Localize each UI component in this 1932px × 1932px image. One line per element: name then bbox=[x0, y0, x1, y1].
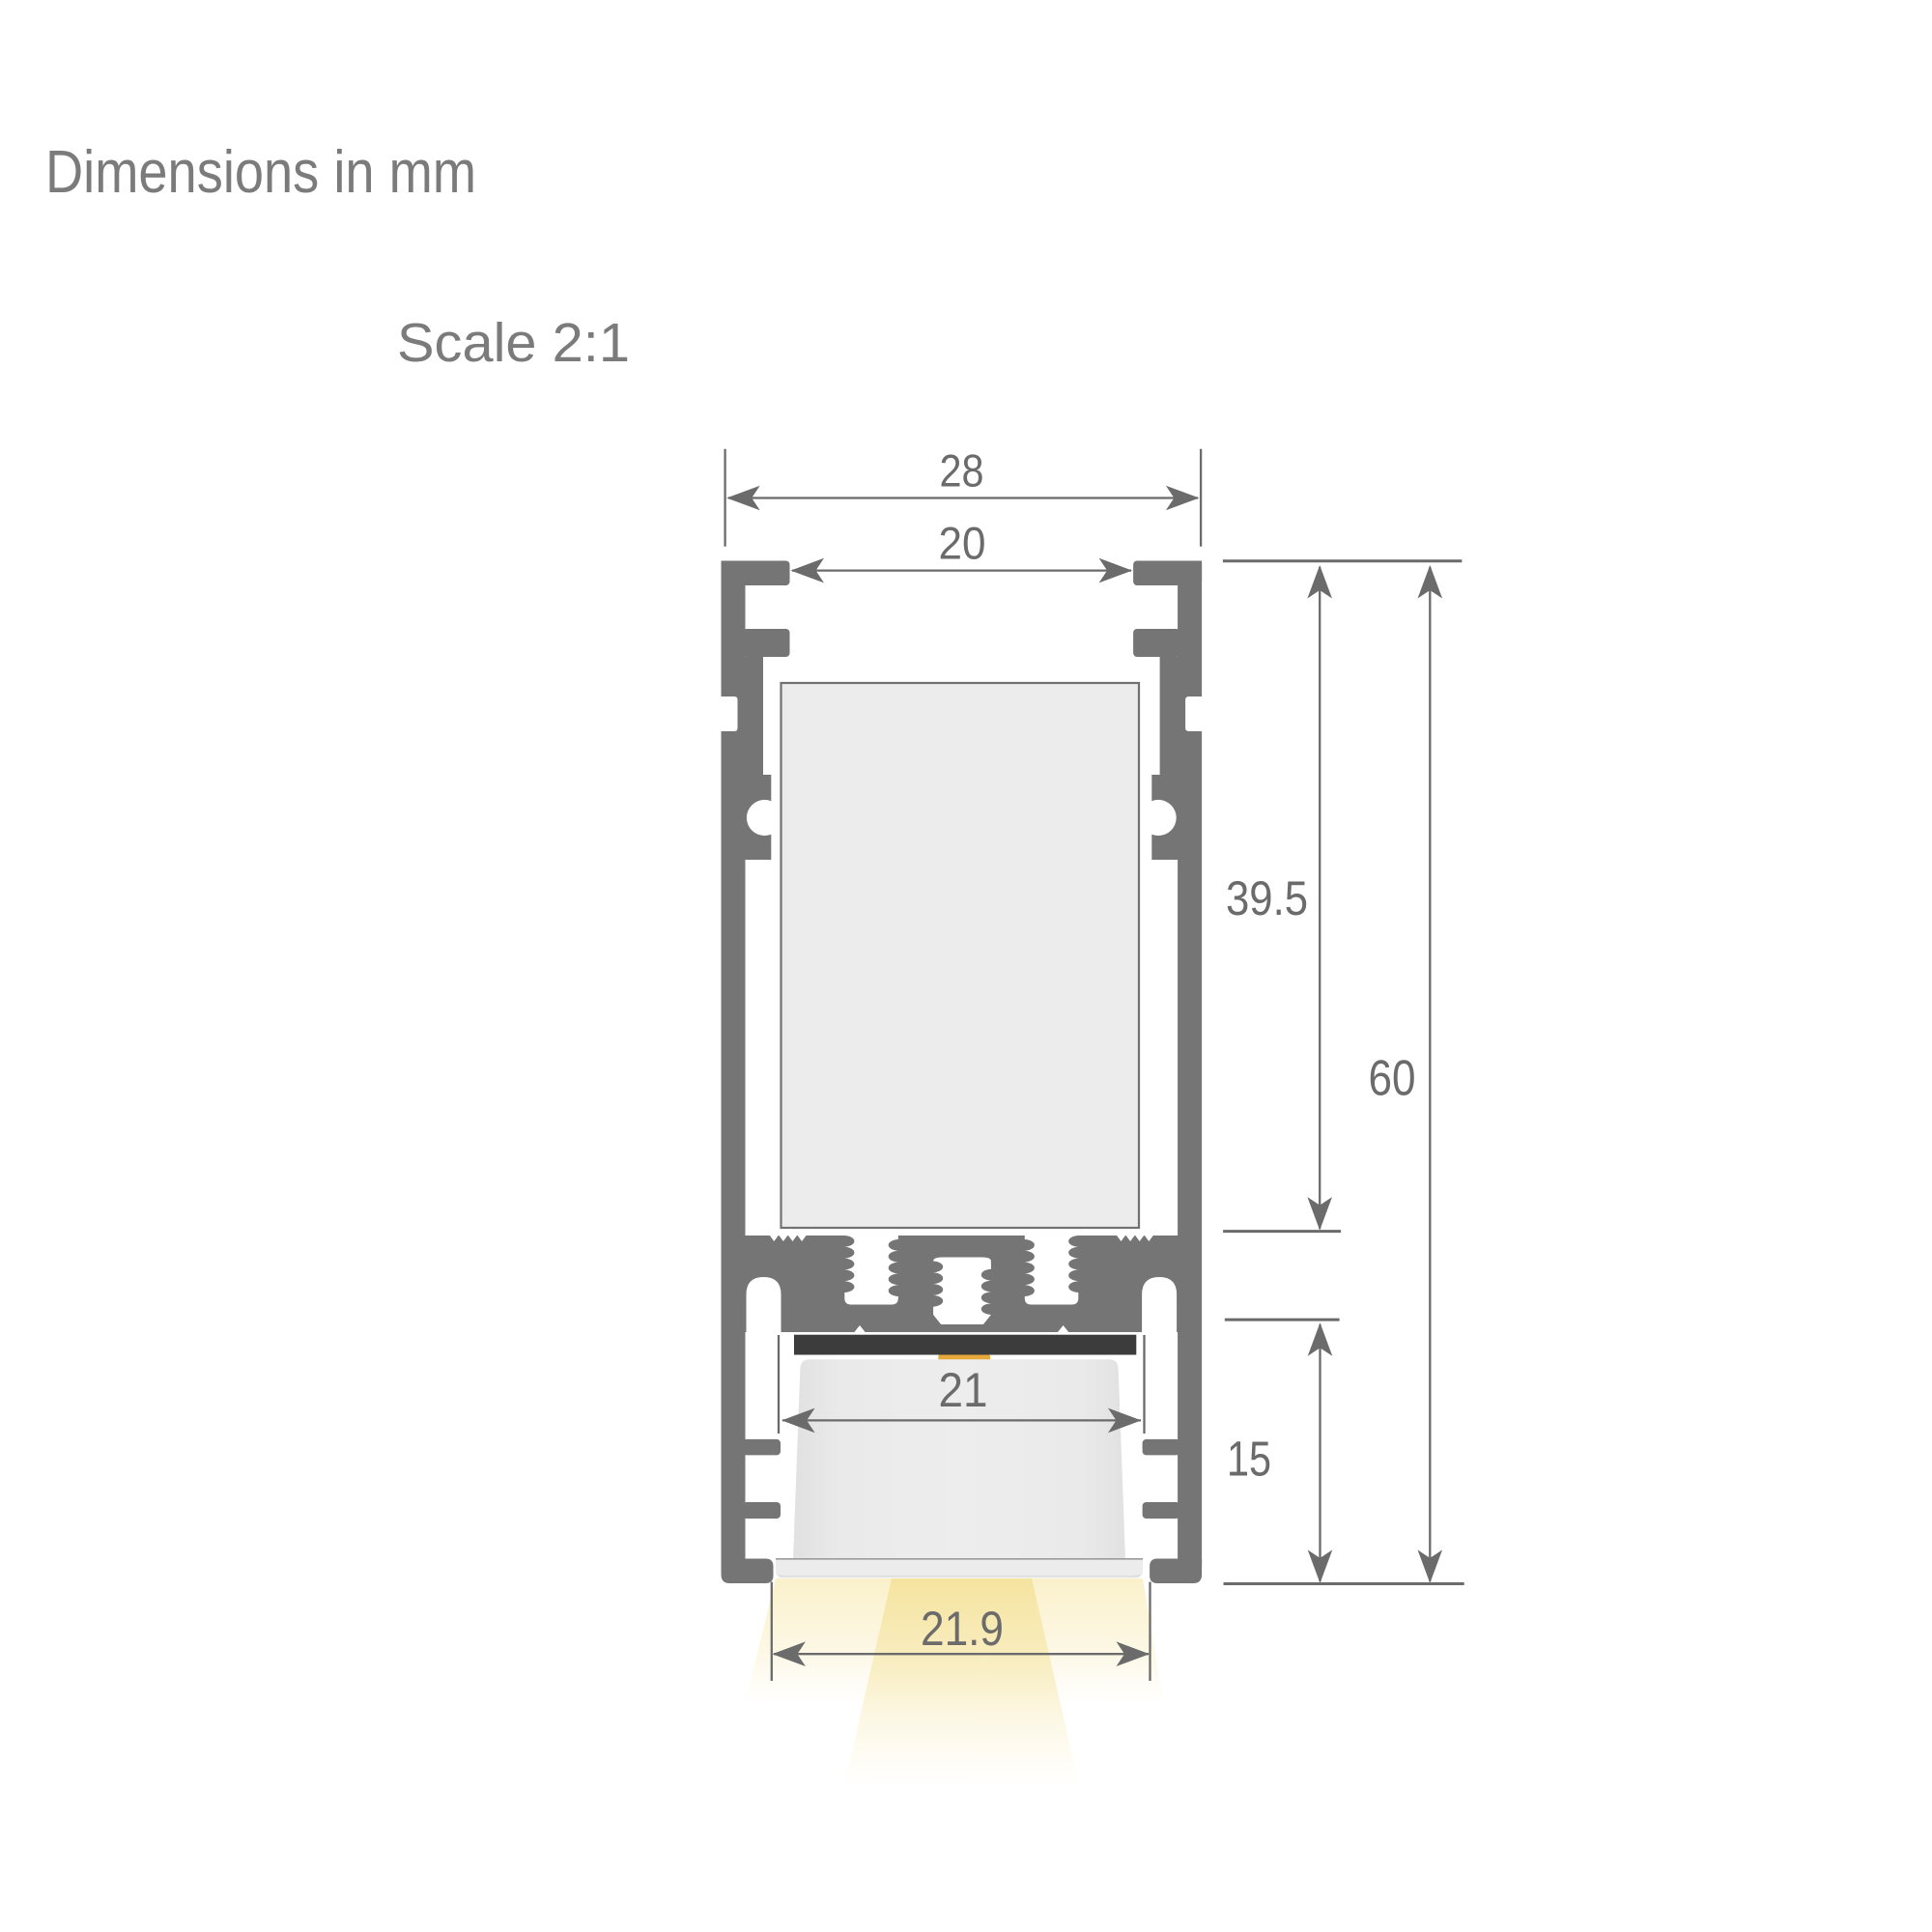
svg-text:21.9: 21.9 bbox=[921, 1602, 1004, 1656]
svg-text:21: 21 bbox=[939, 1363, 988, 1417]
svg-text:15: 15 bbox=[1227, 1432, 1271, 1487]
svg-text:28: 28 bbox=[940, 445, 984, 497]
svg-text:39.5: 39.5 bbox=[1226, 871, 1308, 925]
svg-text:Scale 2:1: Scale 2:1 bbox=[397, 312, 630, 374]
svg-text:60: 60 bbox=[1369, 1051, 1416, 1107]
svg-text:20: 20 bbox=[939, 518, 986, 569]
svg-text:Dimensions in mm: Dimensions in mm bbox=[45, 139, 476, 206]
